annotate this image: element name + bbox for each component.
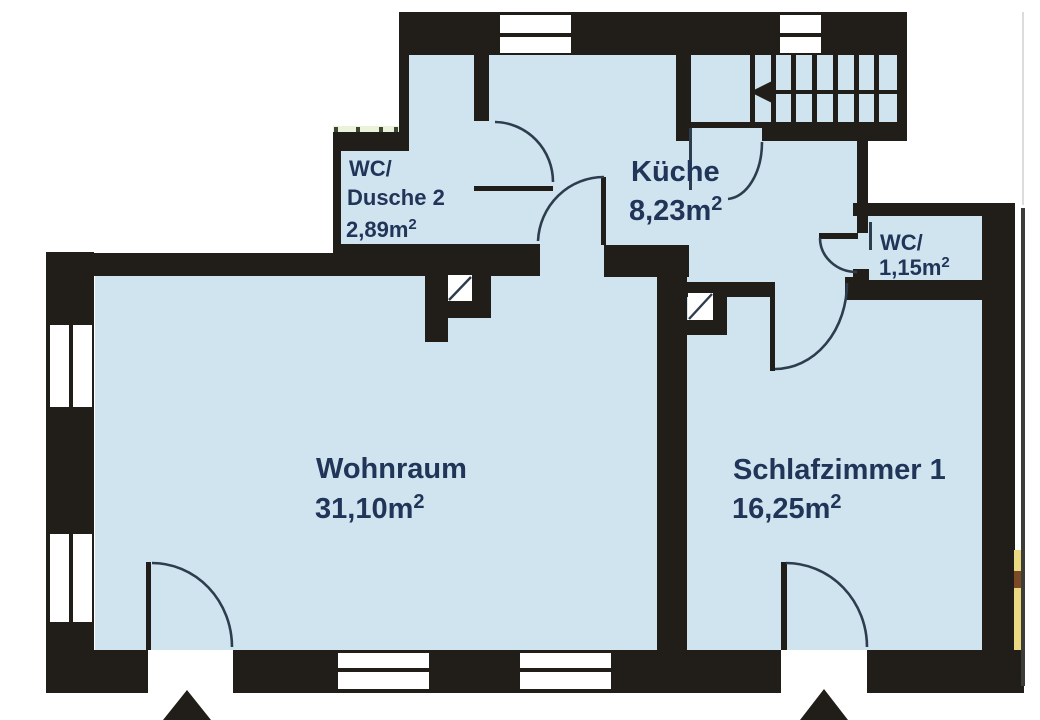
svg-text:Schlafzimmer 1: Schlafzimmer 1: [733, 454, 946, 486]
svg-text:1,15m2: 1,15m2: [879, 254, 950, 280]
svg-text:WC/: WC/: [880, 230, 923, 255]
svg-text:31,10m2: 31,10m2: [315, 491, 424, 525]
svg-text:Wohnraum: Wohnraum: [316, 453, 467, 485]
svg-text:Dusche 2: Dusche 2: [347, 185, 445, 210]
svg-text:WC/: WC/: [349, 156, 392, 181]
svg-text:2,89m2: 2,89m2: [346, 216, 417, 242]
svg-text:8,23m2: 8,23m2: [629, 193, 722, 227]
svg-text:Küche: Küche: [631, 156, 720, 188]
svg-text:16,25m2: 16,25m2: [732, 491, 841, 525]
